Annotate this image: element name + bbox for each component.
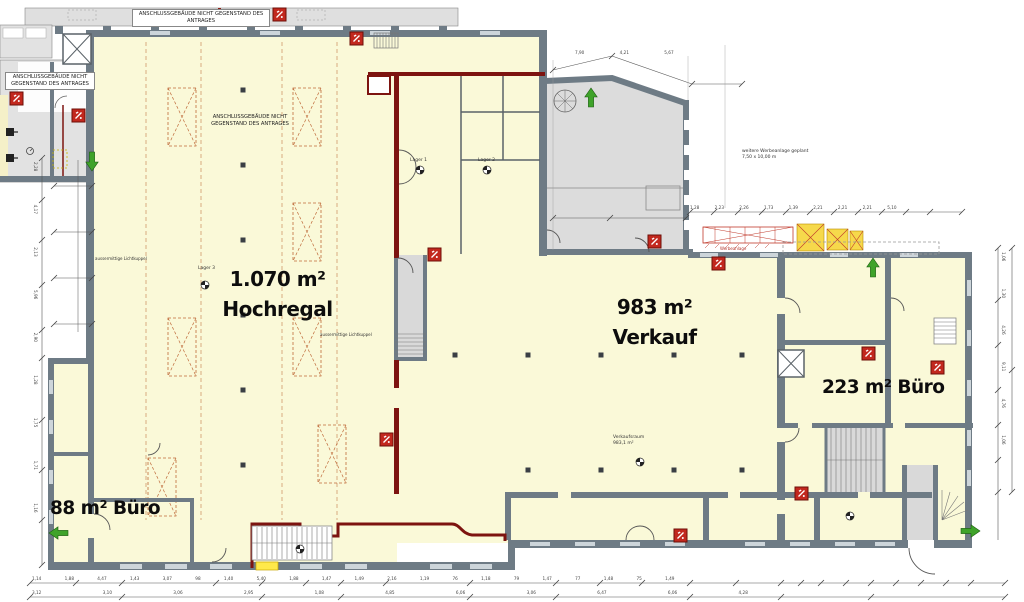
area-name: Verkauf	[597, 322, 712, 352]
area-label-verkauf: 983 m² Verkauf	[597, 292, 712, 352]
note-anschluss-top: ANSCHLUSSGEBÄUDE NICHT GEGENSTAND DES AN…	[132, 9, 270, 27]
note-werbeanlage-red: Werbeanlage	[720, 246, 746, 251]
room-label-verkaufsraum: Verkaufsraum 983,1 m²	[613, 435, 644, 446]
area-name: Hochregal	[205, 294, 350, 324]
dimension-row-grayroom-top: 7,90 4,21 5,67	[575, 50, 735, 55]
fire-extinguisher-icon	[712, 257, 725, 270]
dimension-col-left: 2,28 4,17 2,13 5,96 2,90 1,28 1,75 1,71 …	[33, 162, 38, 562]
floor-plan: 1.070 m² Hochregal 983 m² Verkauf 223 m²…	[0, 0, 1024, 602]
corridor-exit-opening	[908, 540, 934, 548]
fire-extinguisher-icon	[273, 8, 286, 21]
room-label-lager2: Lager 2	[478, 158, 495, 164]
area-label-buero-left: 88 m² Büro	[50, 498, 160, 519]
fire-extinguisher-icon	[428, 248, 441, 261]
highlighted-window	[256, 562, 278, 570]
fire-extinguisher-icon	[380, 433, 393, 446]
fire-extinguisher-icon	[350, 32, 363, 45]
dimension-row-bottom-2: 3,12 3,10 3,06 2,95 1,08 4,85 6,06 3,06 …	[32, 590, 992, 595]
note-lichtkuppel: aussermittige Lichtkuppel	[95, 256, 147, 261]
dimension-row-wing-top: 1,28 2,23 2,26 1,73 1,39 2,21 2,21 2,21 …	[690, 205, 960, 210]
fire-extinguisher-icon	[10, 92, 23, 105]
fire-extinguisher-icon	[795, 487, 808, 500]
note-lichtkuppel: aussermittige Lichtkuppel	[320, 332, 372, 337]
note-anschluss-hall: ANSCHLUSSGEBÄUDE NICHT GEGENSTAND DES AN…	[200, 114, 300, 128]
fire-extinguisher-icon	[862, 347, 875, 360]
dimension-col-right: 1,06 1,30 4,26 9,11 4,76 1,06	[1001, 252, 1006, 490]
area-label-hochregal: 1.070 m² Hochregal	[205, 264, 350, 324]
fire-extinguisher-icon	[648, 235, 661, 248]
area-value: 983 m²	[597, 292, 712, 322]
gray-room-topright	[543, 78, 693, 255]
fire-extinguisher-icon	[72, 109, 85, 122]
area-label-buero-right: 223 m² Büro	[822, 377, 944, 398]
note-anschluss-left: ANSCHLUSSGEBÄUDE NICHT GEGENSTAND DES AN…	[5, 72, 95, 90]
dimension-row-bottom-1: 1,14 1,88 4,47 1,43 3,07 98 1,40 5,40 1,…	[32, 576, 992, 581]
room-label-lager1: Lager 1	[410, 158, 427, 164]
fire-extinguisher-icon	[931, 361, 944, 374]
fire-extinguisher-icon	[674, 529, 687, 542]
room-label-lager3: Lager 3	[198, 266, 215, 272]
note-werbeanlage: weitere Werbeanlage geplant 7,50 x 10,00…	[742, 149, 808, 160]
area-value: 1.070 m²	[205, 264, 350, 294]
